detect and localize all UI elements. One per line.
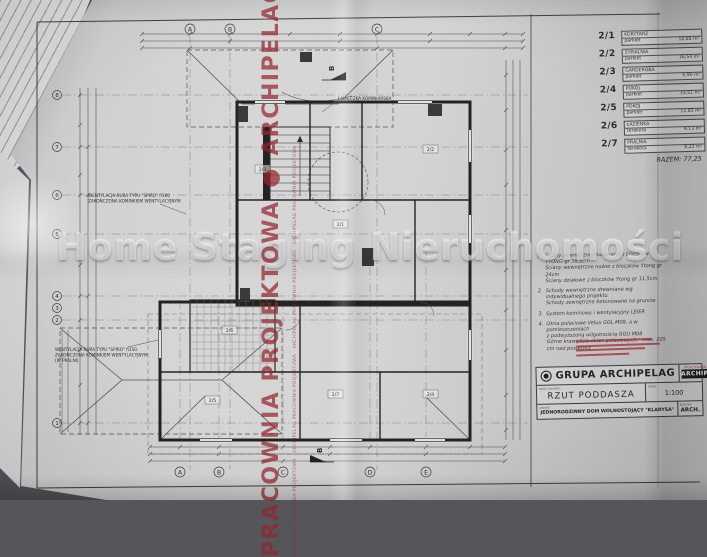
room-finish: parkiet <box>626 110 642 116</box>
home-staging-watermark: Home Staging Nieruchomości <box>56 226 696 269</box>
watermark-small-text: ARCHIPELAG PRACOWNIA PROJEKTOWA · ARCHIP… <box>293 0 298 557</box>
room-tags: 2/1 2/2 2/3 2/4 2/5 2/6 2/7 <box>205 145 438 404</box>
logo-tagline: PRACOWNIA PROJEKTOWA <box>682 364 707 369</box>
trade-value: ARCH. <box>680 407 700 413</box>
total-label: RAZEM: <box>656 155 681 164</box>
photo-of-floor-plan: { "brand_color": "#9e2e34", "watermarks"… <box>0 0 707 500</box>
annotation-line: (W PRALNI) <box>55 358 79 363</box>
scale-label: skala: <box>648 384 657 388</box>
axis-label: E <box>424 469 428 476</box>
schedule-row: 2/5 POKÓJ parkiet12,85 m² <box>600 101 704 119</box>
note-number: 4. <box>538 321 544 352</box>
stamp-text-line <box>576 352 629 356</box>
room-number: 2/5 <box>600 103 623 114</box>
photo-stage: B B A B C A B C D E <box>0 0 707 500</box>
room-tag: 2/2 <box>423 145 438 153</box>
object-value: JEDNORODZINNY DOM WOLNOSTOJĄCY "KLARYSA" <box>540 408 674 416</box>
stamp-text-line <box>576 347 645 351</box>
archipelag-vertical-watermark: PRACOWNIA PROJEKTOWA ● ARCHIPELAG PRACOW… <box>257 0 305 557</box>
axis-label: A <box>188 26 193 33</box>
schedule-row: 2/1 KORYTARZ parkiet10,88 m² <box>598 29 702 47</box>
room-number: 2/4 <box>600 85 623 96</box>
room-box: SYPIALNIA parkiet16,54 m² <box>622 47 703 64</box>
trade-label: branża: <box>680 402 692 406</box>
room-area: 5,90 m² <box>682 73 700 80</box>
grupa-archipelag-logo-icon <box>541 371 552 382</box>
schedule-row: 2/2 SYPIALNIA parkiet16,54 m² <box>599 47 703 65</box>
archipelag-logo: PRACOWNIA PROJEKTOWA ARCHIPELAG <box>679 363 707 381</box>
annotation-line: ŁAWECZKA KOMINIARSKA <box>337 96 392 101</box>
room-finish: parkiet <box>624 38 640 44</box>
axis-label: D <box>368 469 373 476</box>
annotation-line: WENTYLACJA RURA TYPU "SPIRO" fi100 <box>88 193 170 198</box>
room-tag: 2/5 <box>205 396 220 404</box>
room-number: 2/1 <box>598 31 621 42</box>
room-tag: 2/6 <box>222 326 237 334</box>
annotation-line: ZAKOŃCZONA KOMINKIEM WENTYLACYJNYM <box>55 353 148 358</box>
room-area: 8,22 m² <box>684 145 702 152</box>
room-finish: parkiet <box>625 56 641 62</box>
room-box: POKÓJ parkiet12,85 m² <box>623 101 704 118</box>
section-marker-top: B <box>322 66 346 80</box>
room-box: PRALNIA terakota8,22 m² <box>624 137 705 154</box>
room-finish: parkiet <box>626 92 642 98</box>
watermark-main-text: PRACOWNIA PROJEKTOWA ● ARCHIPELAG PRACOW… <box>259 0 284 557</box>
room-number: 2/2 <box>599 49 622 60</box>
svg-text:2/6: 2/6 <box>226 328 233 334</box>
room-number: 2/3 <box>599 67 622 78</box>
annotation-line: ZAKOŃCZONA KOMINKIEM WENTYLACYJNYM <box>88 199 181 204</box>
room-box: POKÓJ parkiet15,51 m² <box>623 83 704 100</box>
note-number: 3. <box>538 311 543 317</box>
section-label-bottom: B <box>316 448 324 453</box>
axis-label: 8 <box>55 93 59 99</box>
scale-value: 1:100 <box>648 388 700 397</box>
red-approval-stamp <box>576 335 665 361</box>
axis-label: B <box>217 469 221 476</box>
svg-text:2/4: 2/4 <box>427 392 434 398</box>
room-area: 16,54 m² <box>679 55 700 62</box>
title-block: GRUPA ARCHIPELAG PRACOWNIA PROJEKTOWA AR… <box>535 363 703 420</box>
drawing-title-label: tytuł rysunku: <box>539 386 561 390</box>
drawing-title: RZUT PODDASZA <box>540 389 642 401</box>
room-finish: parkiet <box>625 74 641 80</box>
room-box: KORYTARZ parkiet10,88 m² <box>621 29 702 46</box>
schedule-row: 2/4 POKÓJ parkiet15,51 m² <box>600 83 704 101</box>
axis-label: 2 <box>55 318 59 324</box>
room-tag: 2/7 <box>328 390 343 398</box>
note-item: 2. Schody wewnętrzne drewniane wg indywi… <box>538 286 668 307</box>
axis-label: 3 <box>55 306 59 312</box>
room-area: 12,85 m² <box>680 109 701 116</box>
room-box: ŁAZIENKA terakota9,13 m² <box>624 119 705 136</box>
schedule-row: 2/7 PRALNIA terakota8,22 m² <box>601 137 705 155</box>
axis-label: 7 <box>55 145 59 151</box>
note-number: 2. <box>538 288 543 307</box>
note-line: System kominowy i wentylacyjny LEIER <box>546 309 645 317</box>
room-area: 10,88 m² <box>678 37 699 44</box>
room-finish: terakota <box>627 128 646 135</box>
axis-label: 4 <box>55 294 59 300</box>
section-marker-bottom: B <box>310 448 334 462</box>
axis-label: A <box>178 469 183 476</box>
vent-annotation-upper: WENTYLACJA RURA TYPU "SPIRO" fi100 ZAKOŃ… <box>88 193 186 214</box>
axis-label: B <box>228 26 232 33</box>
svg-text:2/2: 2/2 <box>427 147 434 153</box>
brand-name: GRUPA ARCHIPELAG <box>556 368 676 382</box>
room-number: 2/6 <box>601 121 624 132</box>
note-line: Schody zewnętrzne betonowane na gruncie <box>546 298 668 307</box>
svg-text:2/5: 2/5 <box>209 398 216 404</box>
room-number: 2/7 <box>601 139 624 150</box>
axis-label: 6 <box>55 193 59 199</box>
room-finish: terakota <box>627 146 646 153</box>
schedule-row: 2/6 ŁAZIENKA terakota9,13 m² <box>601 119 705 137</box>
section-label-top: B <box>328 66 336 71</box>
room-area: 15,51 m² <box>680 91 701 98</box>
title-block-drawing-row: tytuł rysunku: RZUT PODDASZA skala: 1:10… <box>537 381 702 404</box>
schedule-row: 2/3 GARDEROBA parkiet5,90 m² <box>599 65 703 83</box>
object-label: obiekt: <box>539 406 550 410</box>
stamp-text-line <box>576 342 660 347</box>
axis-label: 1 <box>55 421 59 427</box>
vent-annotation-lower: WENTYLACJA RURA TYPU "SPIRO" fi150 ZAKOŃ… <box>55 340 158 363</box>
room-area: 9,13 m² <box>684 127 702 134</box>
total-value: 77,25 <box>683 155 702 164</box>
axis-label: C <box>375 26 379 33</box>
room-tag: 2/4 <box>423 390 438 398</box>
note-line: Ściany działowe z bloczków Ytong gr 11,5… <box>545 275 667 284</box>
logo-name: ARCHIPELAG <box>681 370 707 378</box>
svg-text:2/7: 2/7 <box>332 392 339 398</box>
room-box: GARDEROBA parkiet5,90 m² <box>622 65 703 82</box>
annotation-line: WENTYLACJA RURA TYPU "SPIRO" fi150 <box>55 347 137 352</box>
room-schedule: 2/1 KORYTARZ parkiet10,88 m² 2/2 SYPIALN… <box>598 29 706 166</box>
note-item: 3. System kominowy i wentylacyjny LEIER <box>538 308 668 317</box>
